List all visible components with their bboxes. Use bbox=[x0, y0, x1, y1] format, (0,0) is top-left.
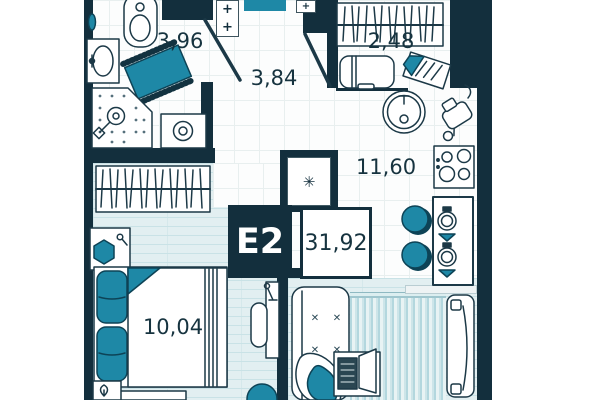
doormat bbox=[244, 0, 286, 11]
floor-plan: ✳ + + + bbox=[0, 0, 600, 400]
suitcase-icon bbox=[340, 56, 394, 89]
area-label-bedroom: 10,04 bbox=[143, 315, 203, 339]
plus-icon: + bbox=[222, 20, 233, 35]
bedroom-wardrobe-rail bbox=[96, 166, 210, 212]
area-label-kitchen: 11,60 bbox=[356, 155, 416, 179]
plant-stand bbox=[90, 228, 130, 270]
kitchen-sink-icon bbox=[383, 91, 425, 133]
pouf bbox=[247, 384, 277, 400]
vacuum-icon bbox=[436, 85, 476, 141]
laptop-icon bbox=[338, 358, 357, 389]
area-label-bathroom: 3,96 bbox=[157, 29, 204, 53]
plus-icon: + bbox=[302, 1, 310, 12]
switchboard-small: + bbox=[296, 0, 316, 13]
plus-icon: + bbox=[222, 2, 233, 17]
plant-icon bbox=[94, 240, 114, 264]
desk bbox=[251, 282, 279, 358]
tv-console bbox=[447, 295, 474, 397]
nightstand bbox=[93, 381, 121, 400]
washing-machine-icon bbox=[161, 114, 206, 148]
cushion-cross-icon: ✕ bbox=[333, 313, 341, 324]
laptop-table bbox=[334, 349, 380, 396]
toilet-icon bbox=[124, 0, 157, 47]
chair bbox=[402, 206, 432, 235]
total-area-box: 31,92 bbox=[300, 207, 372, 279]
unit-badge: E2 bbox=[228, 205, 292, 278]
area-label-hallway: 3,84 bbox=[251, 66, 298, 90]
towel-icon bbox=[89, 14, 96, 30]
chair bbox=[402, 242, 432, 271]
storage-box-icon bbox=[400, 51, 451, 89]
bathroom-sink-icon bbox=[87, 39, 119, 83]
cushion-cross-icon: ✕ bbox=[311, 313, 319, 324]
desk-chair bbox=[251, 303, 267, 347]
dining-table bbox=[433, 197, 473, 285]
snowflake-icon: ✳ bbox=[303, 173, 316, 191]
entrance-door-swing bbox=[305, 34, 330, 86]
stove-icon bbox=[434, 146, 474, 188]
area-label-closet: 2,48 bbox=[368, 29, 415, 53]
switchboard-panel: + + bbox=[216, 0, 239, 37]
fridge-icon: ✳ bbox=[287, 157, 331, 206]
